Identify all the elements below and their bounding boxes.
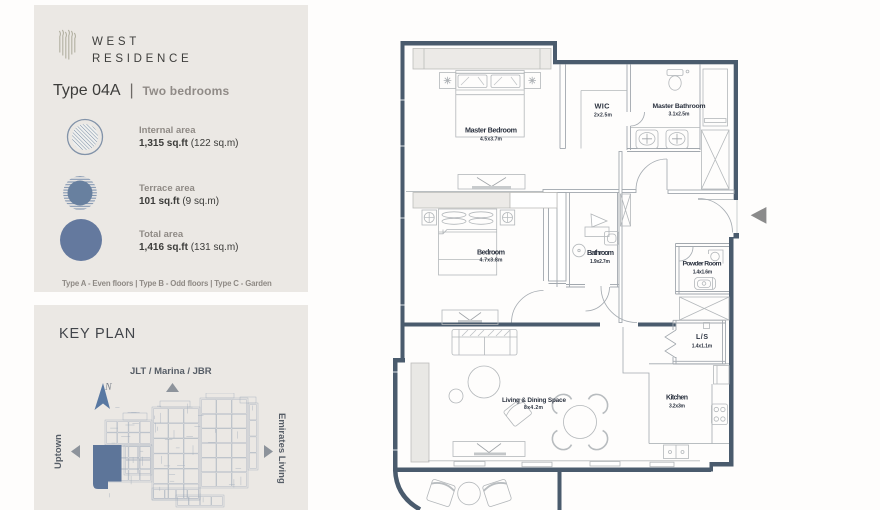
svg-text:Kitchen: Kitchen xyxy=(666,395,688,402)
svg-text:4.5x3.7m: 4.5x3.7m xyxy=(480,137,503,143)
svg-text:L / S: L / S xyxy=(696,334,708,341)
svg-text:1.4x1.1m: 1.4x1.1m xyxy=(692,344,713,350)
svg-text:1.4x1.6m: 1.4x1.6m xyxy=(693,270,713,276)
svg-text:4.7x3.8m: 4.7x3.8m xyxy=(480,258,504,264)
svg-text:Master Bathroom: Master Bathroom xyxy=(653,103,706,110)
svg-text:3.2x3m: 3.2x3m xyxy=(669,404,686,410)
svg-text:8x4.2m: 8x4.2m xyxy=(524,405,544,411)
svg-text:Powder Room: Powder Room xyxy=(683,261,722,268)
svg-text:Master Bedroom: Master Bedroom xyxy=(465,126,517,135)
svg-text:Bathroom: Bathroom xyxy=(587,248,614,257)
svg-text:1.9x2.7m: 1.9x2.7m xyxy=(590,259,611,265)
svg-text:2x2.5m: 2x2.5m xyxy=(594,113,613,119)
svg-text:3.1x2.5m: 3.1x2.5m xyxy=(669,112,691,118)
svg-text:WIC: WIC xyxy=(595,102,611,111)
svg-text:Bedroom: Bedroom xyxy=(477,248,505,257)
svg-text:Living & Dining Space: Living & Dining Space xyxy=(502,397,566,404)
